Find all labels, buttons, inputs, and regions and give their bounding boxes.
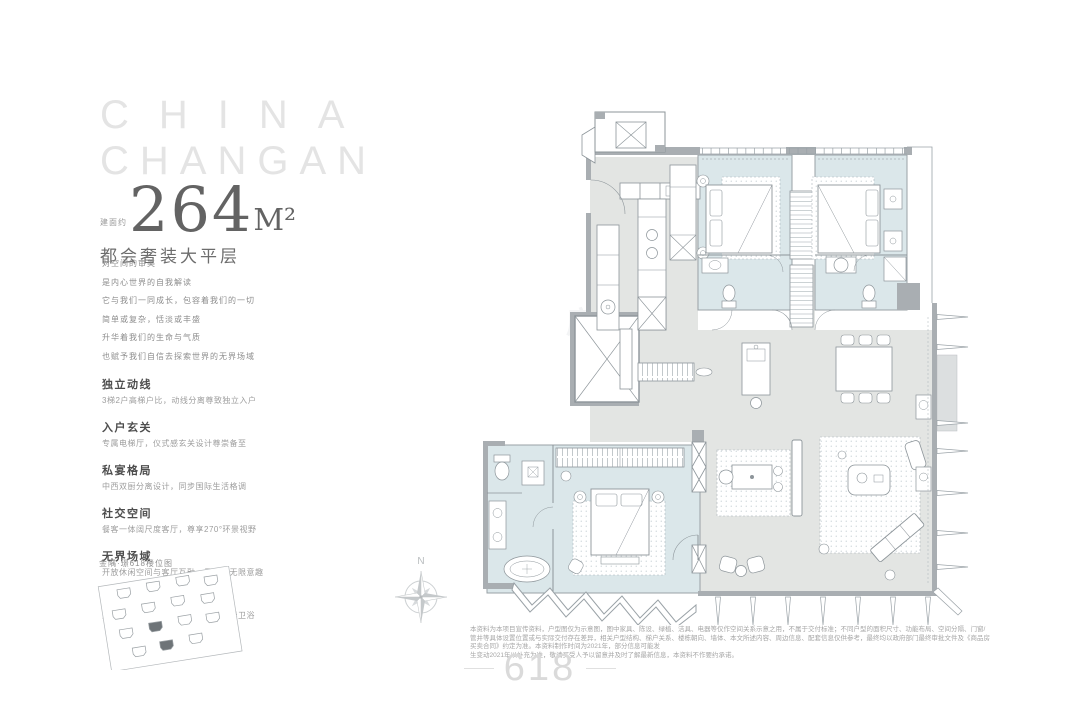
compass-rose: N (390, 552, 452, 630)
east-mullion-spikes (937, 315, 968, 570)
area-prefix: 建面约 (100, 217, 127, 228)
compass-n-label: N (417, 556, 424, 567)
feature-title: 独立动线 (102, 376, 264, 392)
feature-item: 社交空间 餐客一体阔尺度客厅，尊享270°环景视野 (102, 505, 264, 535)
tv-partition (792, 440, 802, 516)
area-row: 建面约 264 M² (100, 182, 296, 238)
brand-line1: CHINA (100, 92, 377, 138)
utility-room (582, 112, 665, 163)
feature-item: 独立动线 3梯2户高梯户比，动线分离尊致独立入户 (102, 376, 264, 406)
wardrobe-column (790, 191, 813, 327)
feature-desc: 专属电梯厅，仪式感玄关设计尊崇备至 (102, 438, 264, 449)
intro-line: 升华着我们的生命与气质 (102, 332, 255, 343)
feature-item: 入户玄关 专属电梯厅，仪式感玄关设计尊崇备至 (102, 419, 264, 449)
project-logo-618: 618 (440, 648, 640, 688)
intro-line: 是内心世界的自我解读 (102, 277, 255, 288)
logo-left-rule (464, 668, 494, 669)
headline: 建面约 264 M² 都会奢装大平层 (100, 182, 296, 267)
feature-title: 社交空间 (102, 505, 264, 521)
intro-line: 对空间的审美 (102, 258, 255, 269)
feature-desc: 3梯2户高梯户比，动线分离尊致独立入户 (102, 395, 264, 406)
dining-set (836, 335, 892, 403)
area-unit: M² (253, 206, 296, 236)
logo-digits: 618 (504, 648, 576, 688)
intro-paragraph: 对空间的审美 是内心世界的自我解读 它与我们一同成长，包容着我们的一切 简单或复… (102, 258, 255, 369)
floor-plan (470, 105, 1000, 625)
area-value: 264 (129, 182, 253, 238)
feature-desc: 中西双厨分离设计，同步国际生活格调 (102, 481, 264, 492)
poster-page: CHINA CHANGAN 建面约 264 M² 都会奢装大平层 对空间的审美 … (0, 0, 1080, 720)
intro-line: 简单或复杂，恬淡或丰盛 (102, 314, 255, 325)
feature-desc: 餐客一体阔尺度客厅，尊享270°环景视野 (102, 524, 264, 535)
feature-item: 私宴格局 中西双厨分离设计，同步国际生活格调 (102, 462, 264, 492)
feature-title: 入户玄关 (102, 419, 264, 435)
brand-logo: CHINA CHANGAN (100, 92, 377, 184)
feature-title: 私宴格局 (102, 462, 264, 478)
intro-line: 它与我们一同成长，包容着我们的一切 (102, 295, 255, 306)
logo-right-rule (586, 668, 616, 669)
intro-line: 也赋予我们自信去探索世界的无界场域 (102, 351, 255, 362)
study-area (717, 450, 790, 516)
siteplan-map (94, 566, 244, 670)
